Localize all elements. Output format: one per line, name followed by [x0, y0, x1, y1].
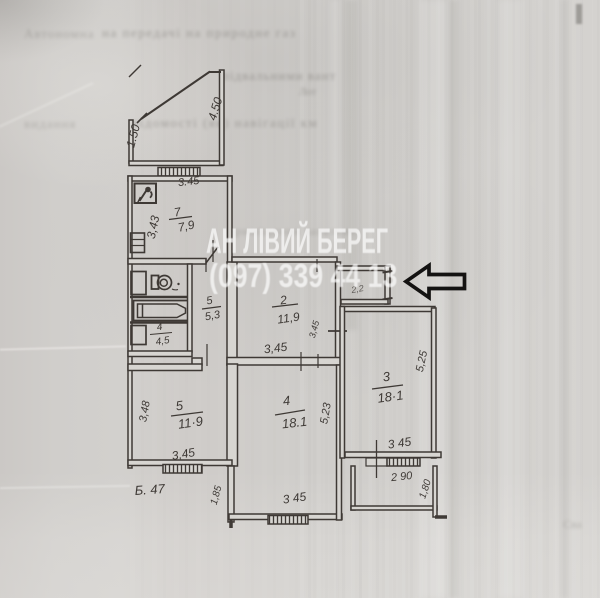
svg-text:3,45: 3,45 [307, 319, 321, 339]
svg-text:18·1: 18·1 [376, 387, 404, 405]
svg-text:5,23: 5,23 [318, 401, 334, 425]
svg-text:2 90: 2 90 [389, 470, 413, 484]
svg-text:4: 4 [282, 393, 291, 409]
svg-text:5,25: 5,25 [414, 349, 430, 373]
svg-text:3,45: 3,45 [171, 445, 197, 463]
svg-text:5: 5 [205, 294, 214, 307]
svg-text:1,80: 1,80 [417, 478, 434, 500]
svg-text:7,9: 7,9 [177, 217, 197, 234]
svg-text:3 45: 3 45 [387, 434, 412, 451]
svg-text:3.45: 3.45 [177, 175, 200, 189]
svg-text:Б. 47: Б. 47 [134, 481, 166, 498]
svg-text:5,3: 5,3 [204, 309, 222, 324]
svg-text:3 45: 3 45 [282, 489, 307, 506]
svg-text:4,5: 4,5 [155, 335, 171, 348]
svg-text:3,45: 3,45 [263, 340, 288, 357]
svg-text:11,9: 11,9 [276, 309, 301, 326]
svg-text:7: 7 [173, 204, 183, 219]
svg-text:11·9: 11·9 [177, 413, 204, 431]
svg-text:3,43: 3,43 [144, 214, 163, 240]
svg-text:3,48: 3,48 [137, 399, 153, 423]
svg-text:18.1: 18.1 [281, 414, 308, 432]
svg-text:5: 5 [175, 398, 185, 414]
svg-text:4: 4 [156, 322, 163, 334]
svg-text:1,85: 1,85 [209, 484, 225, 506]
svg-text:3: 3 [382, 369, 392, 385]
